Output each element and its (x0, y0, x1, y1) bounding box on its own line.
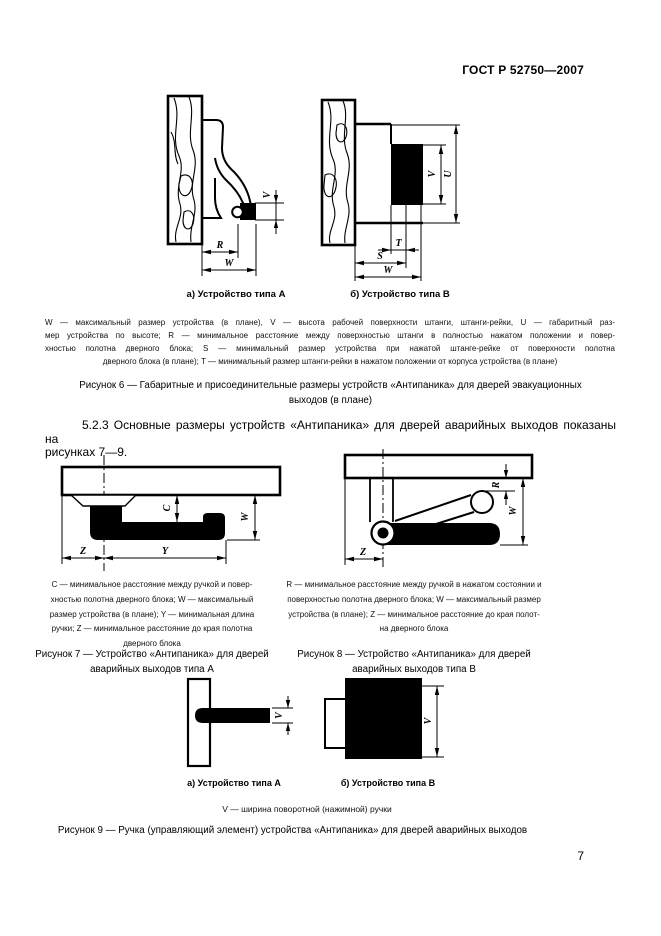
door-leaf (322, 100, 355, 245)
legend-line: поверхностью полотна дверного блока; W —… (282, 593, 546, 608)
fig7-caption-line2: аварийных выходов типа А (21, 662, 283, 677)
document-page: ГОСТ Р 52750—2007 (0, 0, 661, 936)
dim-label-z: Z (359, 547, 366, 558)
bar-roller (232, 207, 243, 218)
lever-handle (195, 708, 270, 723)
fig7-caption-line1: Рисунок 7 — Устройство «Антипаника» для … (21, 647, 283, 662)
dim-label-v: V (423, 716, 434, 724)
fig8-legend: R — минимальное расстояние между ручкой … (282, 578, 546, 637)
figure-7-drawing: C W Z Y (55, 454, 310, 576)
push-handle (90, 506, 225, 540)
legend-line: C — минимальное расстояние между ручкой … (21, 578, 283, 593)
fig8-caption: Рисунок 8 — Устройство «Антипаника» для … (282, 647, 546, 677)
fig6-legend: W — максимальный размер устройства (в пл… (45, 316, 615, 368)
page-number: 7 (577, 849, 584, 863)
wood-grain (324, 101, 349, 243)
dim-label-s: S (377, 251, 383, 262)
fig6-caption-line1: Рисунок 6 — Габаритные и присоединительн… (0, 378, 661, 393)
figure-6b-drawing: V U T S W (315, 95, 475, 287)
legend-line: R — минимальное расстояние между ручкой … (282, 578, 546, 593)
door-leaf (168, 96, 202, 244)
push-bar (391, 144, 423, 205)
fig8-caption-line1: Рисунок 8 — Устройство «Антипаника» для … (282, 647, 546, 662)
fig6-caption: Рисунок 6 — Габаритные и присоединительн… (0, 378, 661, 408)
dim-label-v: V (427, 169, 438, 177)
dim-c (175, 495, 179, 522)
fig8-caption-line2: аварийных выходов типа В (282, 662, 546, 677)
figure-9a-drawing: V (178, 676, 298, 771)
dim-label-z: Z (79, 546, 86, 557)
dim-label-r: R (216, 240, 224, 251)
doc-code-header: ГОСТ Р 52750—2007 (462, 63, 584, 77)
dim-label-w: W (225, 258, 235, 269)
dim-label-t: T (395, 238, 402, 249)
dim-label-w: W (508, 505, 519, 515)
dim-label-v: V (274, 711, 285, 719)
dim-label-y: Y (162, 546, 169, 557)
fig7-caption: Рисунок 7 — Устройство «Антипаника» для … (21, 647, 283, 677)
figure-9b-drawing: V (318, 676, 448, 766)
legend-line: хностью полотна дверного блока; S — мини… (45, 342, 615, 355)
paragraph-line1: 5.2.3 Основные размеры устройств «Антипа… (45, 419, 616, 446)
legend-line: мер устройства по высоте; R — минимально… (45, 329, 615, 342)
door-leaf (62, 467, 280, 495)
legend-line: хностью полотна дверного блока; W — макс… (21, 593, 283, 608)
legend-line: размер устройства (в плане); Y — минимал… (21, 608, 283, 623)
figure-6a-drawing: V R W (143, 92, 321, 284)
touch-bar (383, 523, 500, 545)
fig9-legend: V — ширина поворотной (нажимной) ручки (45, 804, 569, 814)
dim-label-u: U (443, 170, 454, 178)
legend-line: на дверного блока (282, 622, 546, 637)
fig9a-subcaption: а) Устройство типа А (172, 778, 296, 788)
fig9b-subcaption: б) Устройство типа В (326, 778, 450, 788)
legend-line: дверного блока (в плане); T — минимальны… (45, 355, 615, 368)
mounting-plate (71, 495, 136, 506)
fig6a-subcaption: а) Устройство типа А (146, 289, 326, 300)
fig9-caption: Рисунок 9 — Ручка (управляющий элемент) … (30, 823, 555, 838)
fig6b-subcaption: б) Устройство типа В (320, 289, 480, 300)
fig6-caption-line2: выходов (в плане) (0, 393, 661, 408)
dim-label-w: W (384, 265, 394, 276)
dim-label-w: W (240, 511, 251, 521)
pivot-axis (378, 528, 389, 539)
legend-line: устройства (в плане); Z — минимальное ра… (282, 608, 546, 623)
legend-line: ручки; Z — минимальное расстояние до кра… (21, 622, 283, 637)
fig7-legend: C — минимальное расстояние между ручкой … (21, 578, 283, 652)
figure-8-drawing: R W Z (335, 449, 615, 576)
mounting-base (325, 699, 347, 748)
door-leaf (345, 455, 532, 478)
dim-label-v: V (262, 190, 273, 198)
dim-label-r: R (491, 481, 502, 489)
push-pad (345, 678, 422, 759)
dim-label-c: C (162, 504, 173, 511)
legend-line: W — максимальный размер устройства (в пл… (45, 316, 615, 329)
wood-grain (171, 97, 195, 242)
